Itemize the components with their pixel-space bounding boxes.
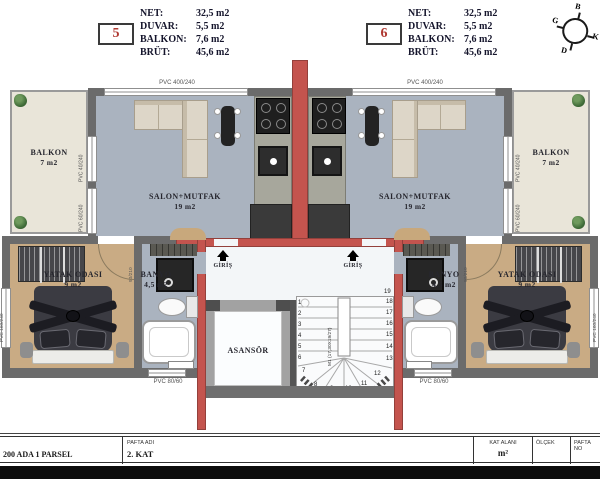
- parcel-label: 200 ADA 1 PARSEL: [3, 450, 72, 459]
- door-opening: [98, 236, 134, 244]
- giris-label-left: GİRİŞ: [206, 263, 240, 271]
- salon-label-right: SALON+MUTFAK 19 m2: [365, 192, 465, 212]
- stair-number: 1: [298, 300, 301, 306]
- stair-number: 6: [298, 355, 301, 361]
- giris-label-right: GİRİŞ: [336, 263, 370, 271]
- door-opening: [214, 239, 238, 246]
- kat-alani-value: m²: [474, 448, 532, 458]
- bath-tile-strip: [150, 244, 197, 256]
- nightstand: [471, 342, 484, 358]
- red-wall-center: [292, 60, 308, 246]
- plant-icon: [572, 94, 585, 107]
- bath-tile-strip: [403, 244, 450, 256]
- window: [87, 136, 97, 182]
- stair-number: 13: [386, 356, 393, 362]
- kitchen-cabinet-right: [308, 204, 350, 240]
- banyo-label-right: BANYO 4,5 m2: [414, 270, 474, 290]
- washing-machine: [406, 361, 432, 369]
- compass-west: B: [574, 1, 581, 11]
- window-size-label: PVC 400/240: [142, 80, 212, 86]
- door-opening: [197, 252, 206, 274]
- nightstand: [567, 342, 580, 358]
- stair-number: 12: [374, 371, 381, 377]
- bathtub: [404, 320, 458, 364]
- window-size-label: PVC 80/60: [146, 379, 190, 385]
- sofa: [182, 100, 208, 178]
- stair-number: 2: [298, 311, 301, 317]
- stair-number: 3: [298, 322, 301, 328]
- door-opening: [394, 252, 403, 274]
- plant-icon: [14, 216, 27, 229]
- info-label: DUVAR:: [140, 21, 196, 32]
- info-label: NET:: [408, 8, 464, 19]
- yatak-label-right: YATAK ODASI 9 m2: [477, 270, 577, 290]
- banyo-label-left: BANYO 4,5 m2: [126, 270, 186, 290]
- toilet: [158, 296, 198, 318]
- info-label: NET:: [140, 8, 196, 19]
- unit-6-number: 6: [381, 26, 388, 41]
- elevator: ASANSÖR: [206, 300, 290, 386]
- unit-5-number: 5: [113, 26, 120, 41]
- titleblock: 200 ADA 1 PARSEL PAFTA ADI 2. KAT KAT AL…: [0, 436, 600, 463]
- window: [352, 88, 496, 96]
- info-label: BALKON:: [140, 34, 196, 45]
- compass-north: K: [591, 32, 599, 42]
- stove-right: [312, 98, 346, 134]
- asansor-label: ASANSÖR: [214, 346, 282, 356]
- titleblock-rule: [0, 433, 600, 434]
- window-size-label: PVC 60/240: [79, 196, 84, 232]
- info-value: 32,5 m2: [196, 8, 229, 19]
- info-value: 5,5 m2: [464, 21, 492, 32]
- stair-flight-label: M1 (17,30X19/27): [328, 313, 333, 366]
- stair-number: 4: [298, 333, 301, 339]
- stair-number: 14: [386, 344, 393, 350]
- pafta-adi-value: 2. KAT: [127, 449, 153, 459]
- wall: [134, 244, 142, 368]
- info-value: 45,6 m2: [196, 47, 229, 58]
- stair-number: 18: [386, 299, 393, 305]
- staircase: [296, 296, 394, 398]
- info-label: BALKON:: [408, 34, 464, 45]
- info-value: 5,5 m2: [196, 21, 224, 32]
- window-size-label: PVC 400/240: [390, 80, 460, 86]
- stove-left: [256, 98, 290, 134]
- plant-icon: [572, 216, 585, 229]
- info-value: 7,6 m2: [196, 34, 224, 45]
- unit-6-info: 6 NET:32,5 m2 DUVAR:5,5 m2 BALKON:7,6 m2…: [366, 8, 536, 66]
- info-value: 7,6 m2: [464, 34, 492, 45]
- sofa: [392, 100, 418, 178]
- rug: [394, 228, 430, 240]
- window: [87, 188, 97, 234]
- toilet: [402, 296, 442, 318]
- dining-table: [216, 100, 240, 152]
- window-size-label: PVC 160/240: [593, 307, 598, 342]
- window: [503, 136, 513, 182]
- compass-south: G: [551, 15, 559, 25]
- compass-rose-icon: B G K D: [544, 0, 600, 65]
- entrance-arrow-icon: [216, 250, 230, 261]
- info-label: BRÜT:: [408, 47, 464, 58]
- info-value: 32,5 m2: [464, 8, 497, 19]
- plant-icon: [14, 94, 27, 107]
- stair-number: 5: [298, 344, 301, 350]
- unit-5-number-box: 5: [98, 23, 134, 45]
- door-opening: [466, 236, 502, 244]
- bed: [486, 286, 568, 372]
- door-opening: [362, 239, 386, 246]
- window: [503, 188, 513, 234]
- floor-plan-sheet: 5 NET:32,5 m2 DUVAR:5,5 m2 BALKON:7,6 m2…: [0, 0, 600, 479]
- window-size-label: PVC 60/240: [516, 196, 521, 232]
- window: [148, 369, 186, 377]
- stair-number: 19: [384, 289, 391, 295]
- window: [414, 369, 452, 377]
- bed: [32, 286, 114, 372]
- pafta-no-header: PAFTA NO: [574, 440, 600, 452]
- pafta-adi-header: PAFTA ADI: [127, 440, 154, 446]
- yatak-label-left: YATAK ODASI 9 m2: [23, 270, 123, 290]
- bathtub: [142, 320, 196, 364]
- salon-label-left: SALON+MUTFAK 19 m2: [135, 192, 235, 212]
- nightstand: [20, 342, 33, 358]
- dining-table: [360, 100, 384, 152]
- info-label: DUVAR:: [408, 21, 464, 32]
- sink-right: [312, 146, 342, 176]
- kitchen-cabinet-left: [250, 204, 292, 240]
- core-hall: [206, 247, 394, 300]
- entrance-arrow-icon: [346, 250, 360, 261]
- unit-5-info: 5 NET:32,5 m2 DUVAR:5,5 m2 BALKON:7,6 m2…: [98, 8, 268, 66]
- olcek-header: ÖLÇEK: [536, 440, 555, 446]
- info-label: BRÜT:: [140, 47, 196, 58]
- nightstand: [116, 342, 129, 358]
- wall: [206, 386, 394, 398]
- sink-left: [258, 146, 288, 176]
- stair-number: 17: [386, 310, 393, 316]
- kat-alani-header: KAT ALANI: [474, 440, 532, 446]
- window-size-label: PVC 160/240: [0, 307, 5, 342]
- stair-number: 16: [386, 321, 393, 327]
- info-value: 45,6 m2: [464, 47, 497, 58]
- washing-machine: [168, 361, 194, 369]
- balkon-label-left: BALKON 7 m2: [14, 148, 84, 168]
- stair-number: 15: [386, 332, 393, 338]
- sheet-bottom-bar: [0, 466, 600, 479]
- window-size-label: PVC 80/60: [412, 379, 456, 385]
- balkon-label-right: BALKON 7 m2: [516, 148, 586, 168]
- stair-number: 7: [302, 368, 305, 374]
- window: [104, 88, 248, 96]
- unit-6-number-box: 6: [366, 23, 402, 45]
- rug: [170, 228, 206, 240]
- compass-east: D: [560, 45, 568, 55]
